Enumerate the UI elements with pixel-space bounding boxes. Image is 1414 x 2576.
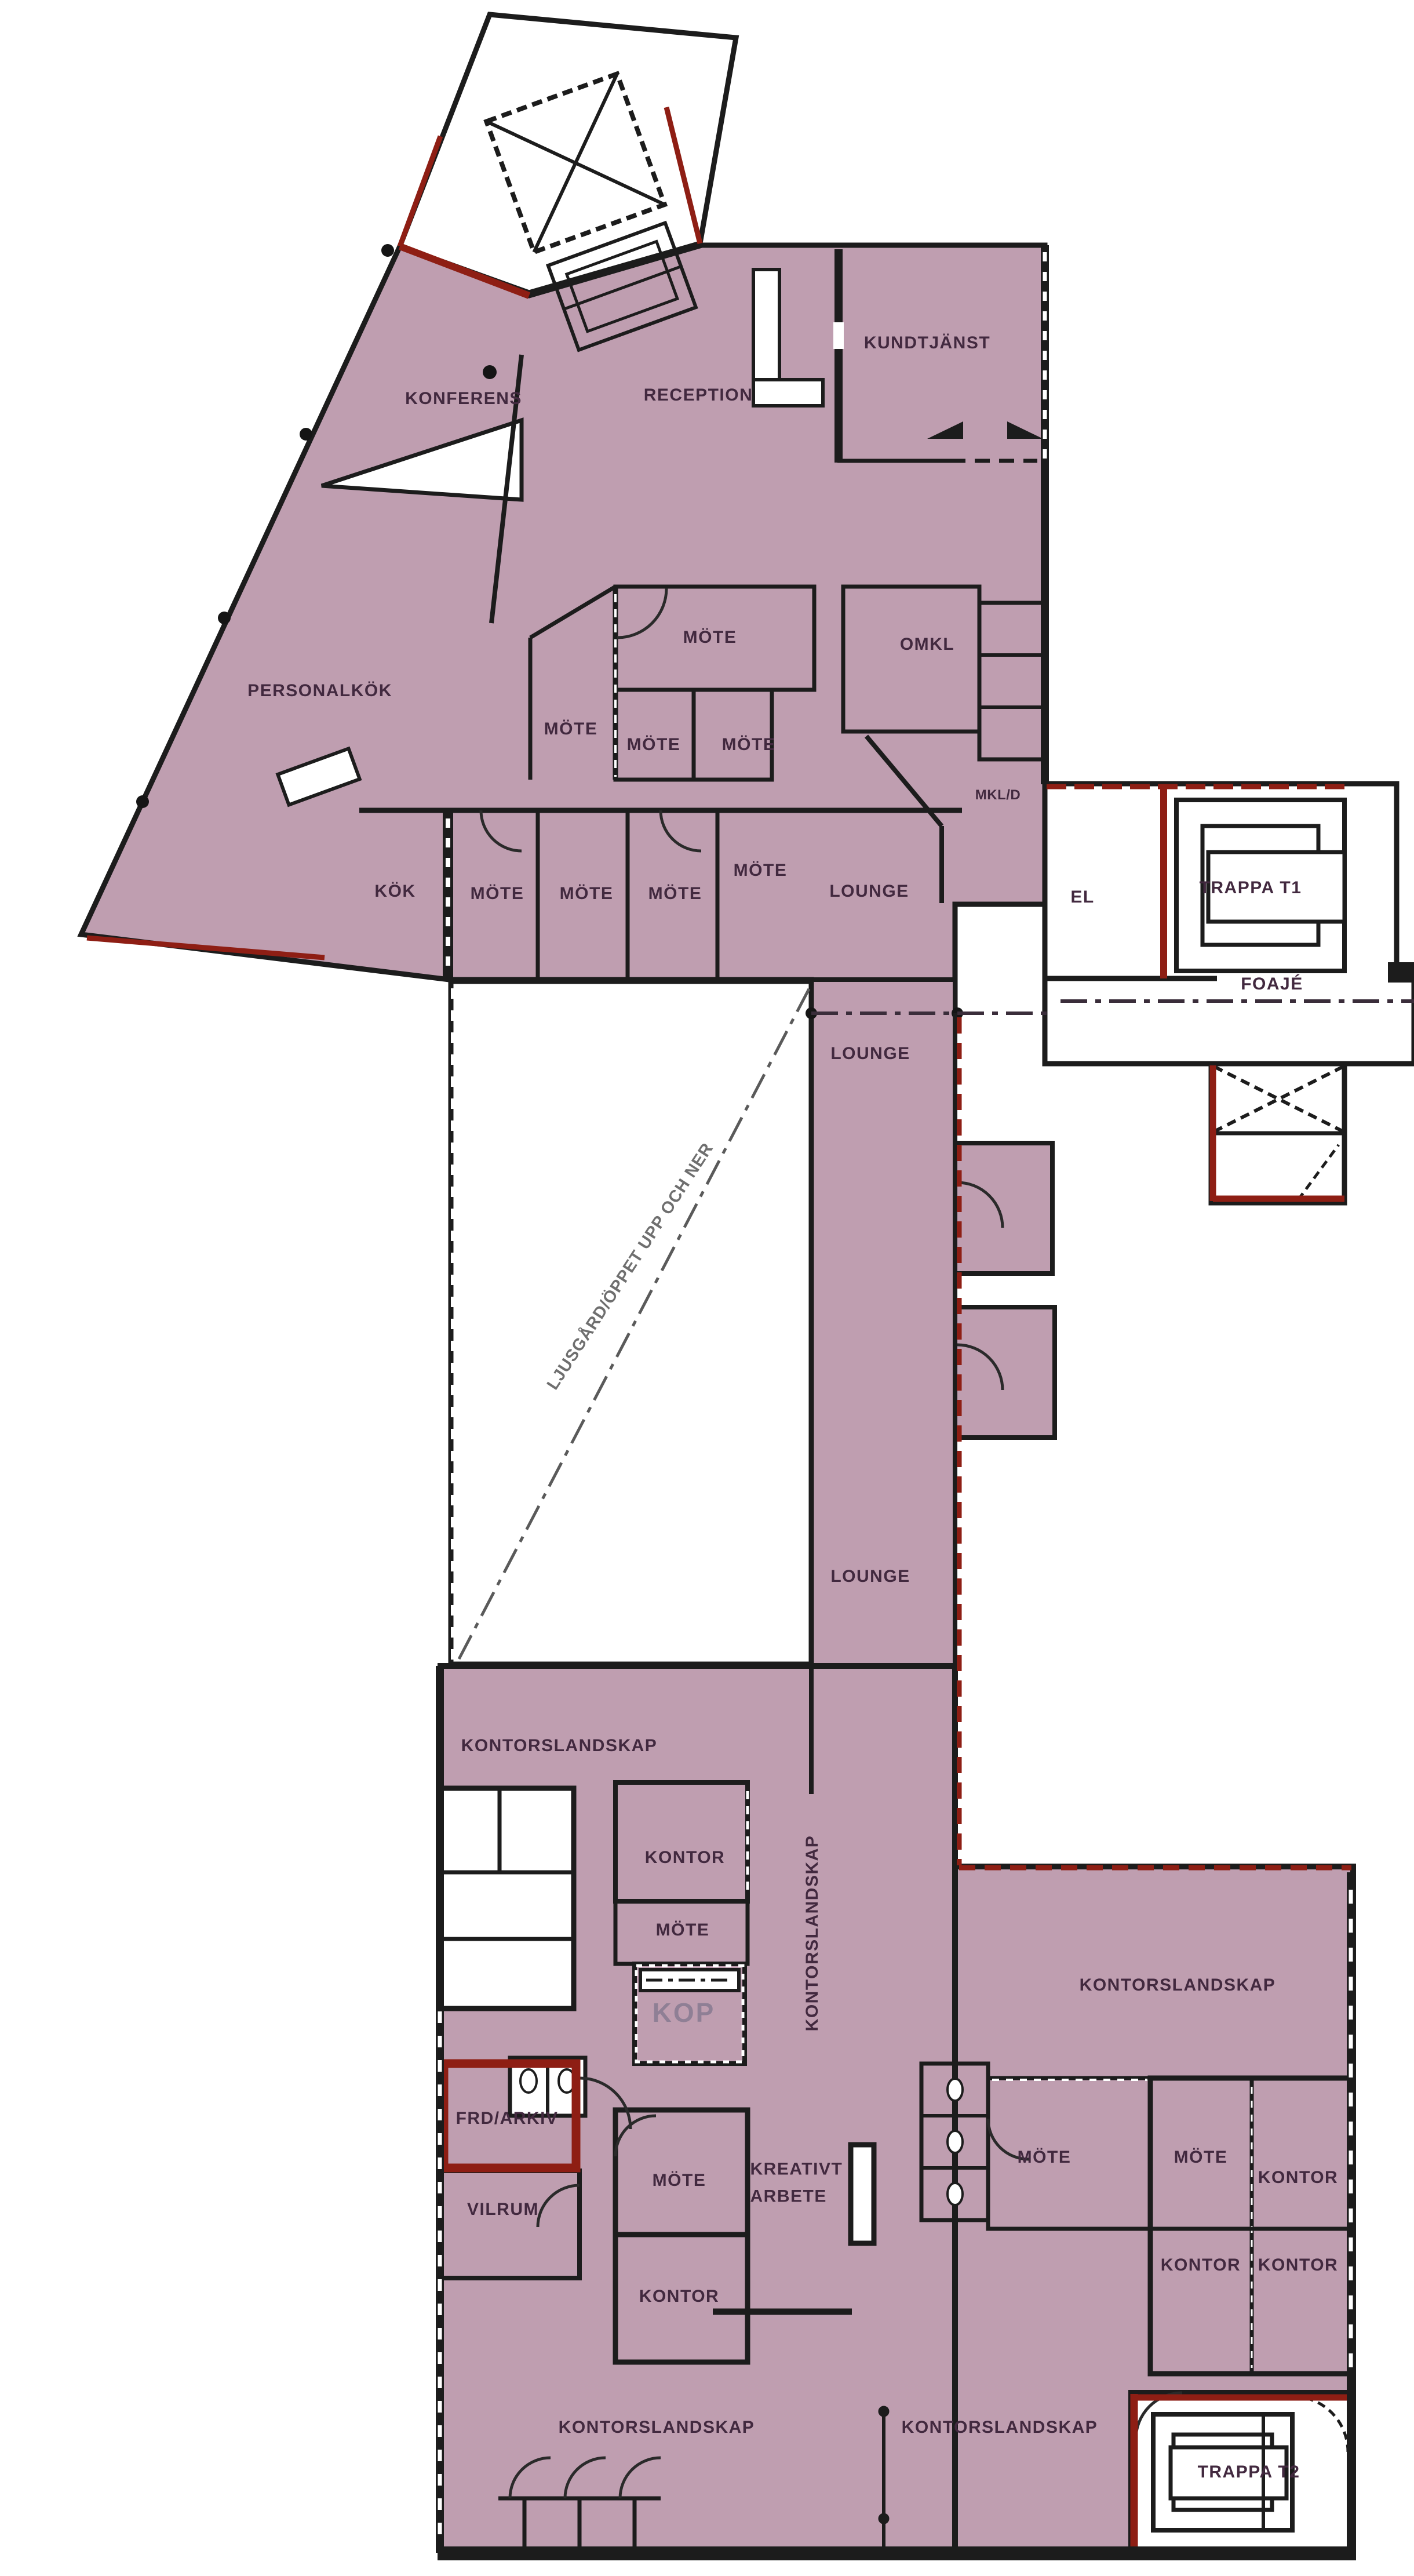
- room-label-vilrum: VILRUM: [467, 2200, 539, 2220]
- room-label-trappa-t2: TRAPPA T2: [1198, 2462, 1300, 2482]
- room-label-kontorslandskap-1: KONTORSLANDSKAP: [461, 1736, 658, 1756]
- room-label-personalkok: PERSONALKÖK: [247, 681, 392, 701]
- room-label-mote-4: MÖTE: [722, 735, 776, 755]
- room-label-lounge-1: LOUNGE: [829, 882, 909, 901]
- room-label-omkl: OMKL: [900, 635, 954, 654]
- corridor-shape: [811, 980, 955, 1666]
- room-label-kontorslandskap-2: KONTORSLANDSKAP: [803, 1835, 822, 2032]
- room-label-kontor-3: KONTOR: [1258, 2168, 1338, 2188]
- room-label-kontor-2: KONTOR: [639, 2287, 719, 2306]
- room-label-kontor-4: KONTOR: [1161, 2255, 1241, 2275]
- room-label-mote-12: MÖTE: [1174, 2148, 1228, 2167]
- room-label-mote-5: MÖTE: [471, 884, 524, 904]
- room-label-kontor-1: KONTOR: [645, 1848, 725, 1868]
- corridor-alcove-2: [955, 1307, 1055, 1438]
- room-label-mote-2: MÖTE: [544, 719, 598, 739]
- room-label-kontorslandskap-3: KONTORSLANDSKAP: [1080, 1975, 1276, 1995]
- wc-cluster-left: [440, 1788, 574, 2009]
- room-label-mote-7: MÖTE: [648, 884, 702, 904]
- room-label-kontorslandskap-4: KONTORSLANDSKAP: [559, 2418, 755, 2437]
- room-label-foaje: FOAJÉ: [1241, 974, 1303, 994]
- room-label-trappa-t1: TRAPPA T1: [1200, 878, 1302, 898]
- room-label-lounge-3: LOUNGE: [830, 1567, 910, 1587]
- room-label-kontor-5: KONTOR: [1258, 2255, 1338, 2275]
- room-label-mote-11: MÖTE: [1018, 2148, 1072, 2167]
- corridor-alcove-1: [955, 1143, 1052, 1274]
- room-label-lounge-2: LOUNGE: [830, 1044, 910, 1064]
- room-label-mote-10: MÖTE: [653, 2171, 706, 2191]
- room-label-el: EL: [1070, 887, 1094, 907]
- room-label-mote-9: MÖTE: [656, 1920, 710, 1940]
- room-label-mote-3: MÖTE: [627, 735, 681, 755]
- floor-plan: KUNDTJÄNST RECEPTION KONFERENS PERSONALK…: [0, 0, 1414, 2576]
- room-label-mkl-d: MKL/D: [975, 787, 1021, 803]
- room-label-kontorslandskap-5: KONTORSLANDSKAP: [902, 2418, 1098, 2437]
- room-label-konferens: KONFERENS: [405, 389, 522, 409]
- room-label-kok: KÖK: [374, 882, 416, 901]
- room-label-mote-8: MÖTE: [734, 861, 788, 881]
- room-label-reception: RECEPTION: [644, 385, 753, 405]
- room-label-mote-1: MÖTE: [683, 628, 737, 647]
- lightwell-courtyard: [451, 981, 811, 1664]
- room-label-frd-arkiv: FRD/ARKIV: [456, 2109, 559, 2129]
- room-label-kundtjanst: KUNDTJÄNST: [864, 333, 990, 353]
- room-label-kreativt-arbete: KREATIVT ARBETE: [750, 2156, 863, 2210]
- room-label-mote-6: MÖTE: [560, 884, 614, 904]
- room-label-kop: KOP: [653, 1997, 716, 2028]
